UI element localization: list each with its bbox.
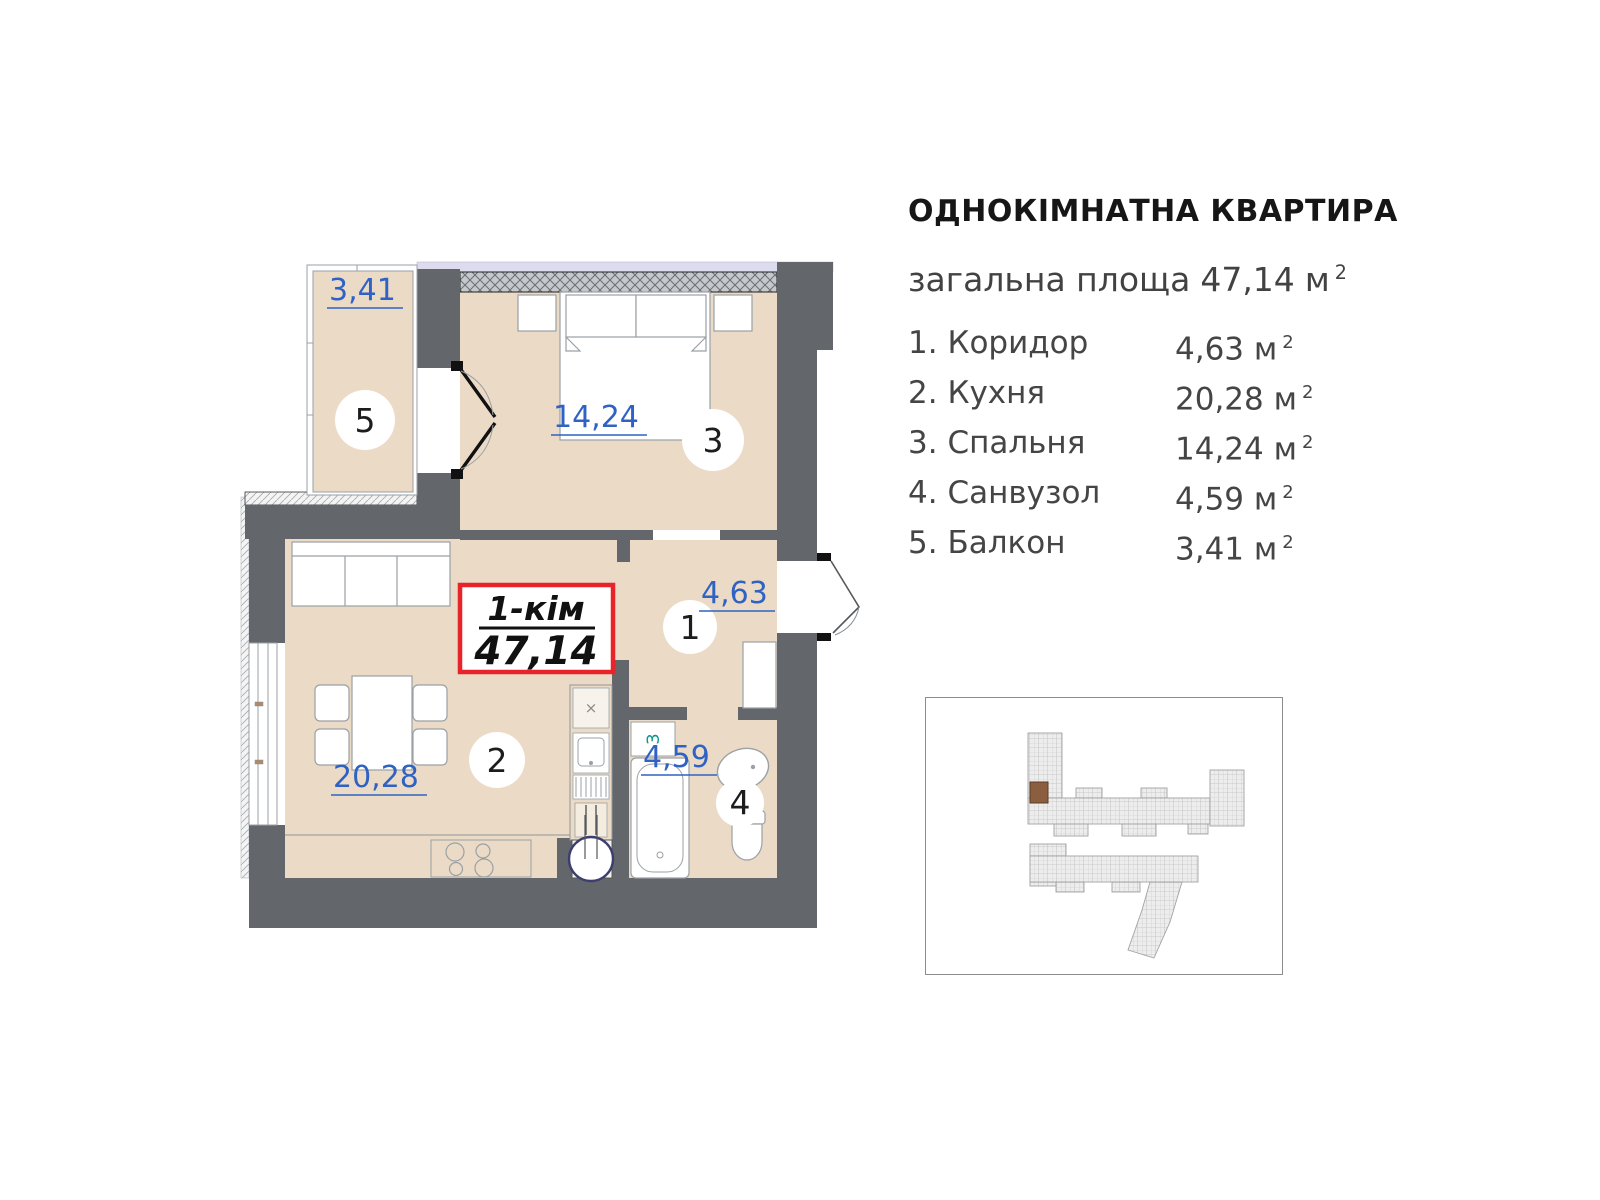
legend-num: 4. — [908, 475, 938, 511]
legend-name: Спальня — [947, 425, 1085, 461]
legend-row-sanvuzol: 4. Санвузол 4,59 м2 — [908, 468, 1368, 518]
legend-num: 2. — [908, 375, 938, 411]
legend-area: 20,28 — [1175, 381, 1264, 417]
legend-row-balkon: 5. Балкон 3,41 м2 — [908, 518, 1368, 568]
legend-num: 1. — [908, 325, 938, 361]
bath-area-label: 4,59 — [643, 740, 710, 775]
legend-area: 4,59 — [1175, 481, 1244, 517]
legend-unit: м — [1254, 331, 1277, 367]
legend-num: 5. — [908, 525, 938, 561]
legend-row-spalnya: 3. Спальня 14,24 м2 — [908, 418, 1368, 468]
room-legend: 1. Коридор 4,63 м2 2. Кухня 20,28 м2 3. … — [908, 318, 1368, 568]
total-area-superscript: 2 — [1335, 261, 1347, 284]
total-area-label: загальна площа — [908, 260, 1190, 299]
total-area-value: 47,14 — [1200, 260, 1294, 299]
legend-sup: 2 — [1302, 432, 1313, 453]
badge-balcony: 5 — [355, 401, 376, 440]
legend-num: 3. — [908, 425, 938, 461]
legend-row-kuhnya: 2. Кухня 20,28 м2 — [908, 368, 1368, 418]
legend-row-koridor: 1. Коридор 4,63 м2 — [908, 318, 1368, 368]
cutting-board-mark: × — [585, 699, 598, 717]
entrance-door — [817, 553, 859, 641]
legend-unit: м — [1274, 381, 1297, 417]
legend-area: 3,41 — [1175, 531, 1244, 567]
legend-unit: м — [1254, 481, 1277, 517]
hall-closet — [743, 642, 776, 708]
legend-name: Коридор — [947, 325, 1088, 361]
legend-sup: 2 — [1282, 332, 1293, 353]
building-top — [1028, 733, 1244, 836]
kitchen-window — [249, 643, 277, 825]
badge-kitchen: 2 — [487, 741, 508, 780]
hall-area-label: 4,63 — [701, 576, 768, 611]
unit-area-value: 47,14 — [473, 629, 597, 674]
legend-area: 14,24 — [1175, 431, 1264, 467]
legend-sup: 2 — [1282, 532, 1293, 553]
bedroom-area-label: 14,24 — [553, 400, 639, 435]
badge-bedroom: 3 — [703, 421, 724, 460]
floor-plan: × З — [235, 255, 875, 935]
bedroom-top-wall-hatch — [460, 272, 777, 292]
legend-area: 4,63 — [1175, 331, 1244, 367]
building-bottom — [1030, 844, 1198, 958]
total-area-line: загальна площа47,14м2 — [908, 260, 1347, 299]
total-area-unit: м — [1305, 260, 1330, 299]
balcony-area-label: 3,41 — [329, 273, 396, 308]
highlighted-unit — [1030, 782, 1048, 803]
legend-name: Балкон — [947, 525, 1065, 561]
unit-type-box: 1-кім 47,14 — [460, 585, 613, 674]
page-title: ОДНОКІМНАТНА КВАРТИРА — [908, 194, 1398, 229]
legend-unit: м — [1254, 531, 1277, 567]
legend-unit: м — [1274, 431, 1297, 467]
kitchen-area-label: 20,28 — [333, 760, 419, 795]
bedroom-window-band — [417, 262, 833, 272]
kitchen-counter: × — [570, 685, 612, 840]
badge-bath: 4 — [730, 783, 751, 822]
legend-name: Кухня — [947, 375, 1045, 411]
legend-name: Санвузол — [947, 475, 1100, 511]
sofa — [292, 542, 450, 606]
badge-hall: 1 — [680, 608, 701, 647]
unit-type-label: 1-кім — [487, 589, 584, 628]
site-minimap — [925, 697, 1283, 975]
bathtub — [631, 758, 689, 878]
legend-sup: 2 — [1282, 482, 1293, 503]
site-minimap-svg — [926, 698, 1282, 974]
legend-sup: 2 — [1302, 382, 1313, 403]
